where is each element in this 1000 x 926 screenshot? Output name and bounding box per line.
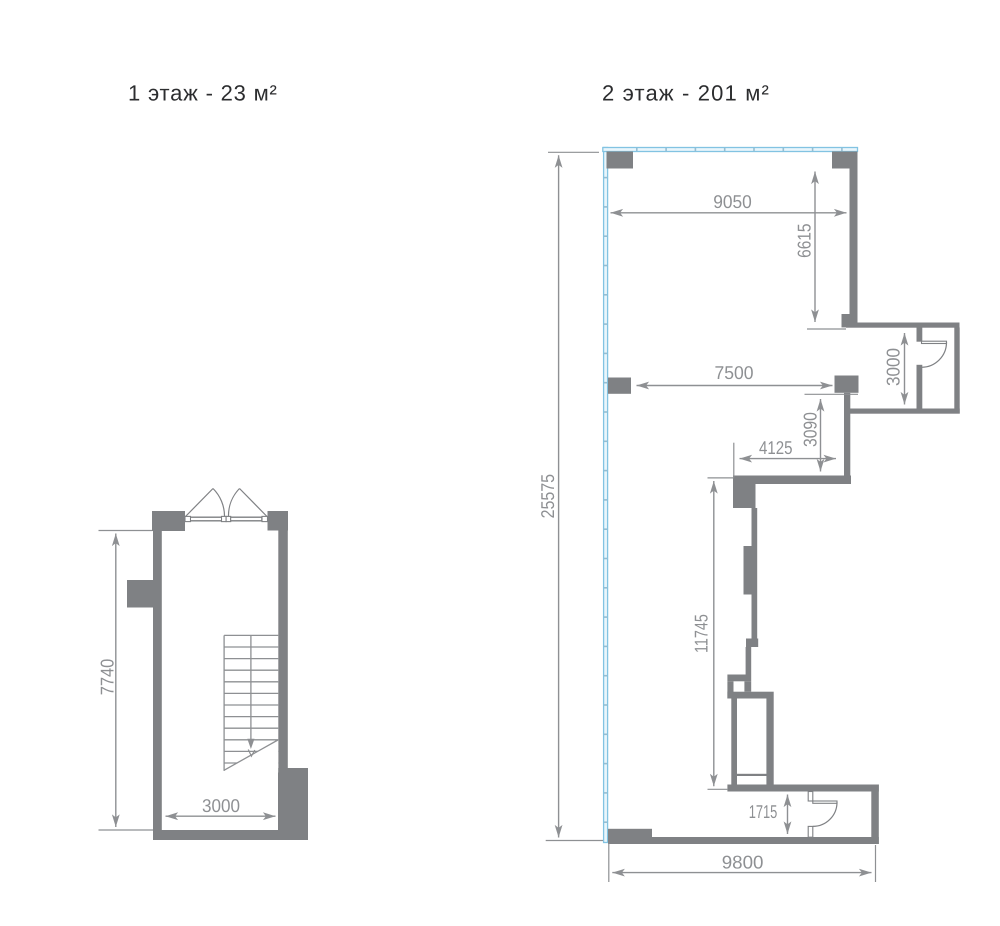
- svg-text:2 этаж - 201 м²: 2 этаж - 201 м²: [602, 81, 770, 106]
- svg-text:6615: 6615: [794, 223, 815, 257]
- svg-text:7740: 7740: [97, 659, 118, 696]
- svg-text:7500: 7500: [715, 362, 754, 383]
- svg-text:1 этаж - 23 м²: 1 этаж - 23 м²: [128, 81, 278, 106]
- svg-text:11745: 11745: [691, 614, 712, 653]
- svg-text:9800: 9800: [722, 852, 764, 873]
- svg-text:25575: 25575: [537, 474, 558, 518]
- svg-text:4125: 4125: [759, 437, 793, 458]
- svg-text:1715: 1715: [749, 801, 778, 822]
- svg-text:3000: 3000: [202, 795, 240, 816]
- svg-text:9050: 9050: [713, 191, 752, 212]
- svg-text:3000: 3000: [883, 348, 904, 386]
- svg-text:3090: 3090: [800, 412, 821, 447]
